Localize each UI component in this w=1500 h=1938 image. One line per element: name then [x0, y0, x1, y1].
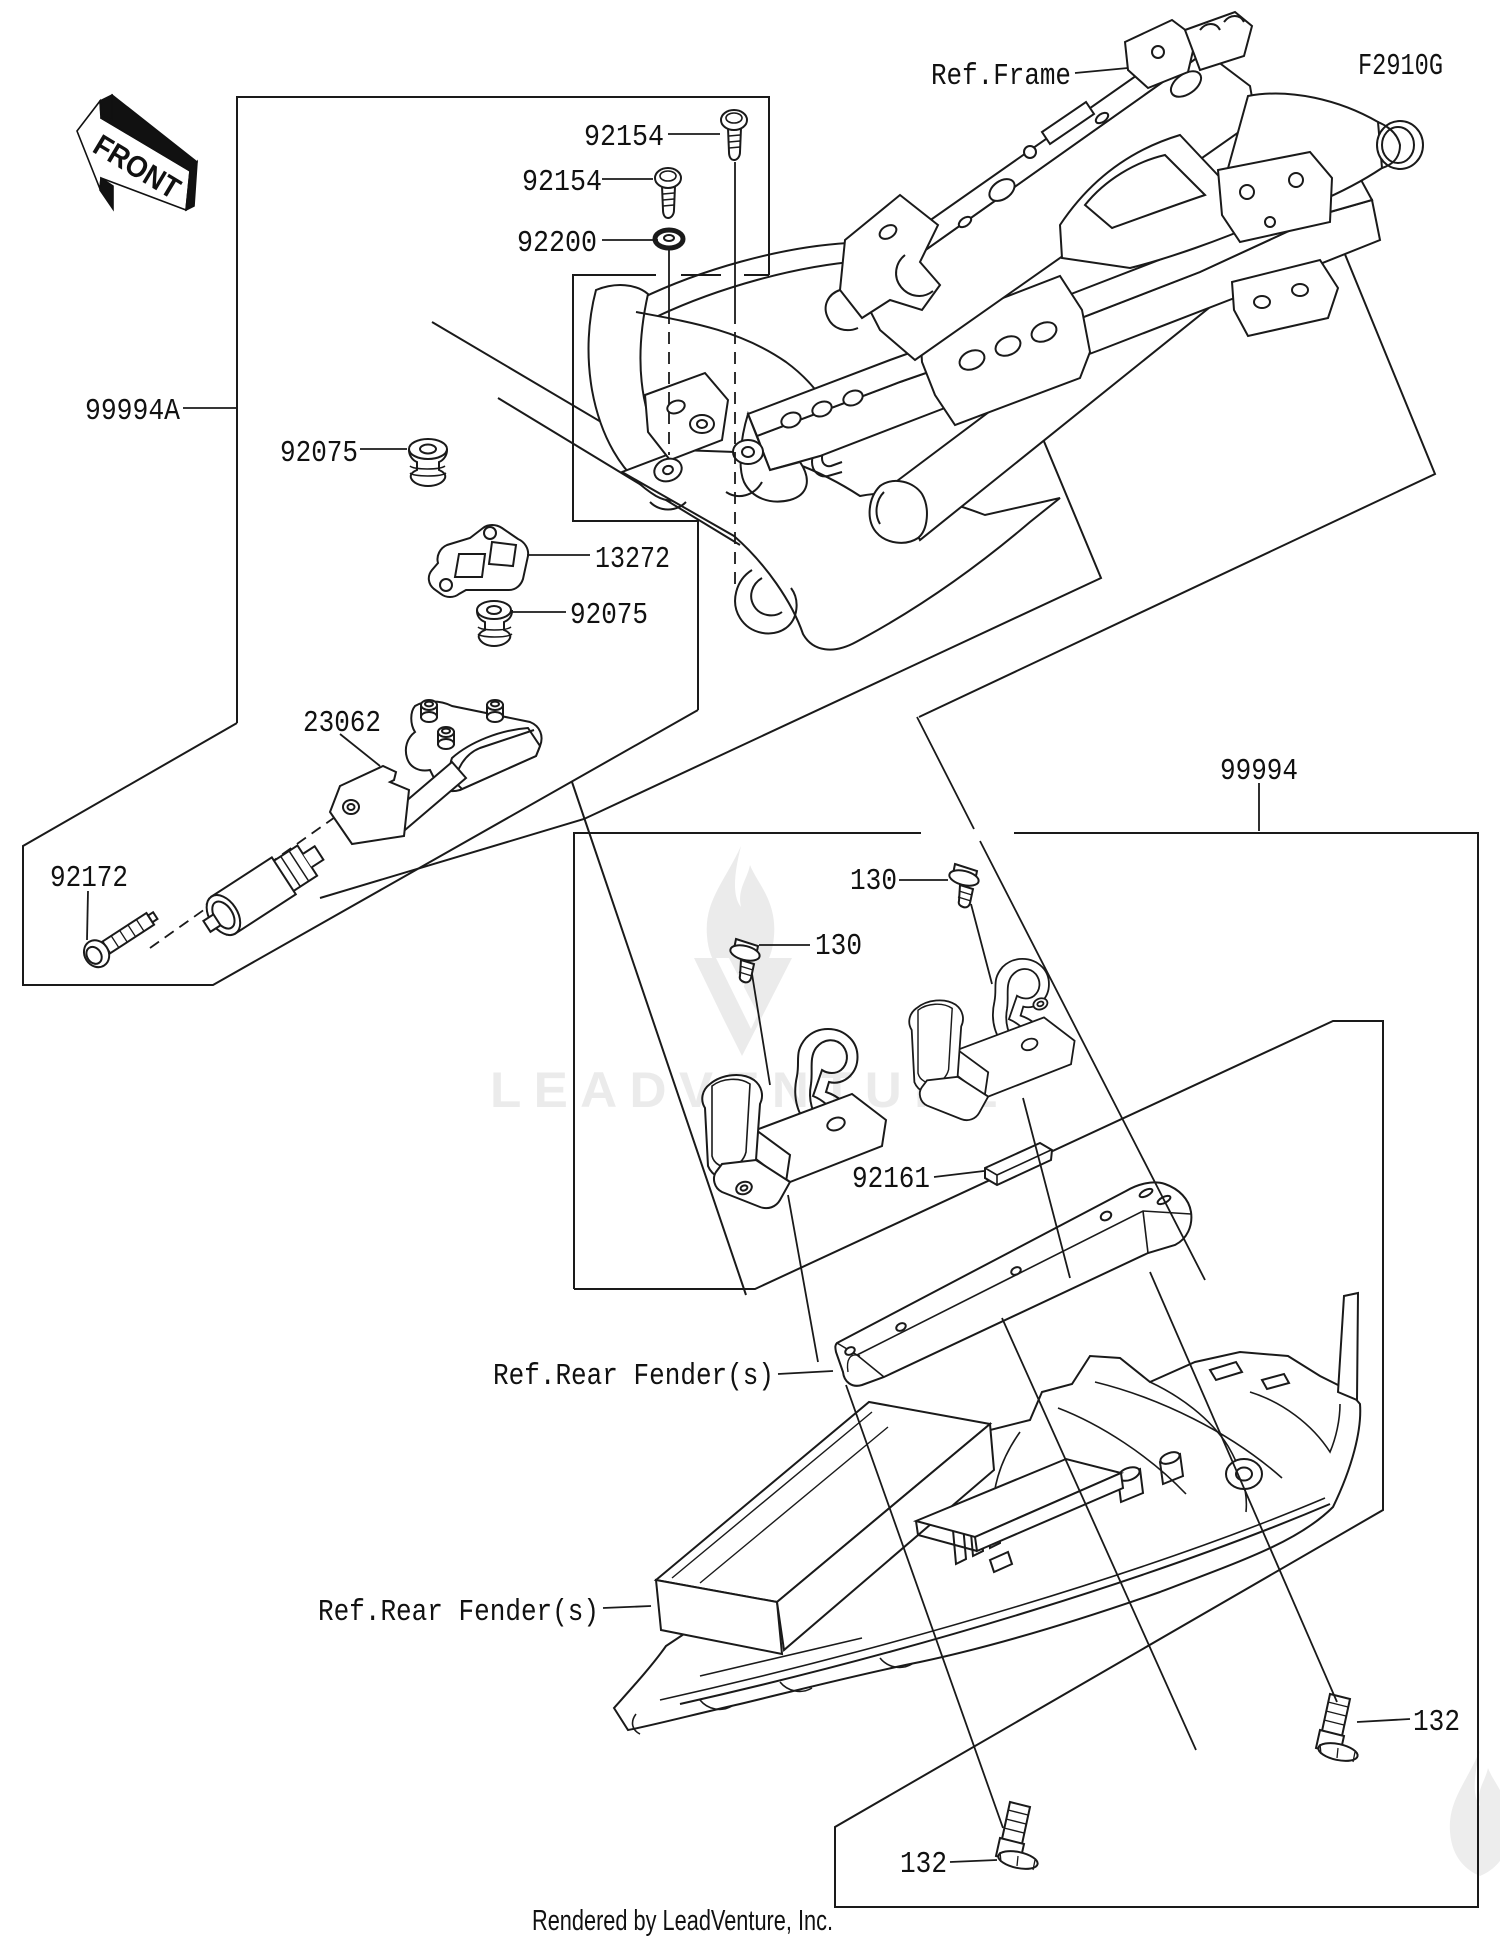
svg-text:132: 132 [900, 1847, 947, 1882]
svg-text:Ref.Frame: Ref.Frame [931, 59, 1071, 94]
svg-text:130: 130 [850, 864, 897, 899]
svg-text:130: 130 [815, 929, 862, 964]
svg-text:13272: 13272 [595, 542, 670, 577]
svg-text:92200: 92200 [517, 226, 597, 261]
svg-text:92161: 92161 [852, 1162, 930, 1197]
svg-text:132: 132 [1413, 1705, 1460, 1740]
svg-text:Ref.Rear Fender(s): Ref.Rear Fender(s) [493, 1359, 774, 1394]
svg-text:92154: 92154 [584, 120, 664, 155]
svg-text:92075: 92075 [570, 598, 648, 633]
svg-text:Ref.Rear Fender(s): Ref.Rear Fender(s) [318, 1595, 599, 1630]
svg-text:99994A: 99994A [85, 394, 180, 429]
svg-text:Rendered by LeadVenture, Inc.: Rendered by LeadVenture, Inc. [532, 1905, 833, 1937]
svg-text:F2910G: F2910G [1358, 49, 1443, 84]
svg-text:92172: 92172 [50, 861, 128, 896]
svg-text:92075: 92075 [280, 436, 358, 471]
svg-text:92154: 92154 [522, 165, 602, 200]
